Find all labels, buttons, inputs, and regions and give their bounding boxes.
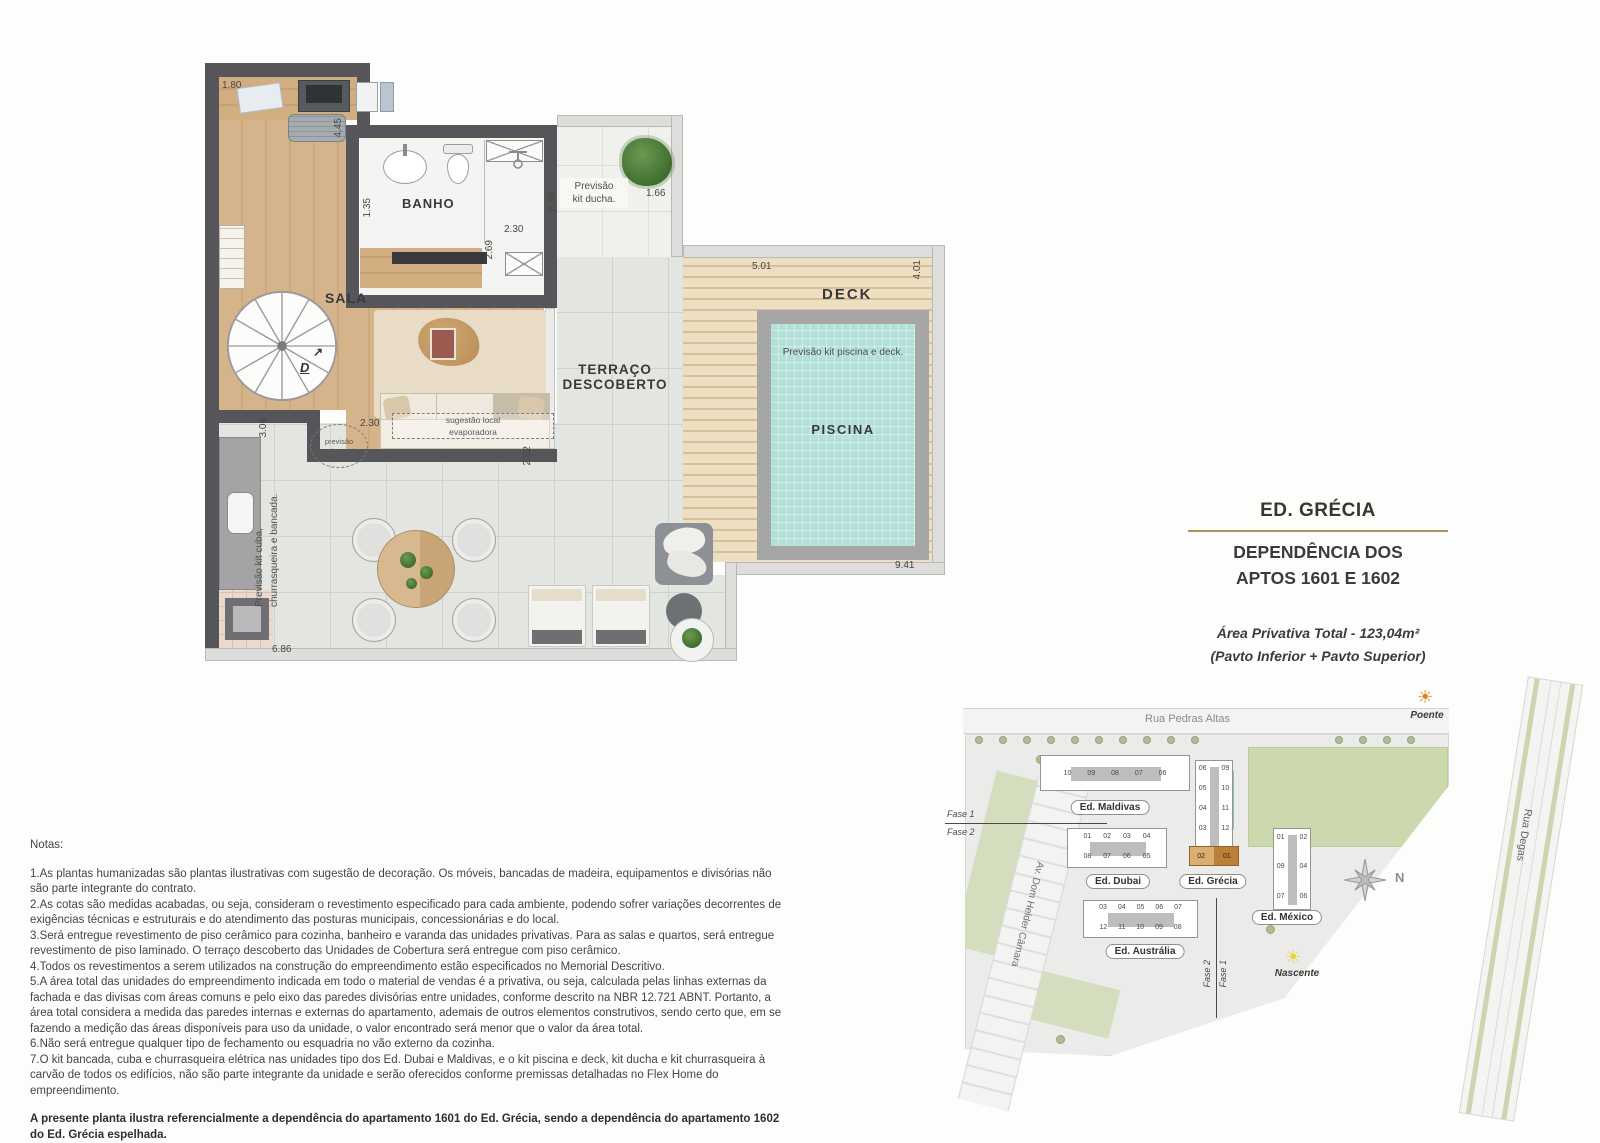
tree-icon	[999, 736, 1007, 744]
note-item: 2.As cotas são medidas acabadas, ou seja…	[30, 898, 786, 929]
lounger-foot	[532, 630, 582, 644]
plant-icon	[682, 628, 702, 648]
dining-chair	[352, 598, 396, 642]
parapet	[932, 245, 945, 575]
building-units: 01 02	[1274, 834, 1310, 841]
note-item: 3.Será entregue revestimento de piso cer…	[30, 929, 786, 960]
note-item: 1.As plantas humanizadas são plantas ilu…	[30, 867, 786, 898]
sun-east-icon: ☀	[1285, 948, 1301, 966]
wall-segment	[352, 125, 557, 138]
dimension: 9.41	[895, 560, 914, 571]
kit-ducha-line: kit ducha.	[560, 193, 628, 206]
building-units: 12 11 10 09 08	[1084, 924, 1197, 931]
building-label-maldivas: Ed. Maldivas	[1071, 800, 1150, 815]
compass-icon	[1343, 858, 1387, 902]
tree-icon	[1266, 925, 1275, 934]
building-mexico: 01 02 09 04 07 06	[1273, 828, 1311, 910]
sun-west-icon: ☀	[1417, 688, 1433, 706]
building-dubai: 01 02 03 04 08 07 06 05	[1067, 828, 1167, 868]
site-map: Rua Pedras Altas Av. Dom Helder Câmara R…	[955, 660, 1600, 1120]
room-sala-label: SALA	[325, 290, 367, 306]
dining-chair	[452, 518, 496, 562]
tree-icon	[1047, 736, 1055, 744]
tree-icon	[1056, 1035, 1065, 1044]
area-line: Área Privativa Total - 123,04m²	[1188, 625, 1448, 641]
tree-icon	[1359, 736, 1367, 744]
shaft-box	[505, 252, 543, 276]
compass-n-label: N	[1395, 870, 1404, 885]
room-deck-label: DECK	[822, 286, 873, 303]
dimension: 2.30	[360, 418, 379, 429]
dimension: 2.69	[484, 240, 495, 259]
tree-icon	[1167, 736, 1175, 744]
phase-label-fase2-v: Fase 2	[1202, 960, 1212, 988]
parapet	[557, 115, 683, 127]
building-label-australia: Ed. Austrália	[1106, 944, 1185, 959]
tree-icon	[1335, 736, 1343, 744]
tree-icon	[1095, 736, 1103, 744]
evaporator-label: sugestão local	[393, 414, 553, 426]
building-maldivas: 10 09 08 07 06	[1040, 755, 1190, 791]
condenser-label: condensador	[311, 447, 367, 457]
appliance	[392, 252, 487, 264]
bbq-grill-inner	[233, 606, 261, 632]
sun-east-label: Nascente	[1275, 968, 1319, 979]
wall-segment	[205, 63, 370, 77]
terraco-line: TERRAÇO	[540, 362, 690, 377]
dimension: 2.30	[504, 224, 523, 235]
title-rule	[1188, 530, 1448, 532]
parapet	[725, 562, 737, 660]
laptop-screen	[306, 85, 342, 103]
building-units: 03 04 05 06 07	[1084, 904, 1197, 911]
sun-west-label: Poente	[1410, 710, 1443, 721]
tree-icon	[1407, 736, 1415, 744]
building-title: ED. GRÉCIA	[1188, 500, 1448, 522]
wall-segment	[205, 63, 219, 660]
building-units: 08 07 06 05	[1068, 853, 1166, 860]
building-grecia: 06 09 05 10 04 11 03 12	[1195, 760, 1233, 860]
lounger-pillow	[532, 589, 582, 601]
building-units: 06 09	[1196, 765, 1232, 772]
parapet	[683, 245, 945, 258]
terraco-line: DESCOBERTO	[540, 377, 690, 392]
tree-icon	[1143, 736, 1151, 744]
dimension: 2.52	[522, 446, 533, 465]
building-grecia-highlight-unit: 02 01	[1189, 846, 1239, 866]
title-block: ED. GRÉCIA DEPENDÊNCIA DOS APTOS 1601 E …	[1188, 500, 1448, 664]
dining-chair	[452, 598, 496, 642]
phase-label-fase1: Fase 1	[947, 809, 975, 819]
shelf	[219, 225, 245, 289]
parapet	[671, 115, 683, 257]
dimension: 4.01	[912, 260, 923, 279]
tree-icon	[1383, 736, 1391, 744]
kit-cuba-line: Previsão kit cuba,	[252, 432, 267, 607]
kit-ducha-note: Previsão kit ducha.	[560, 178, 628, 208]
book-icon	[356, 82, 378, 112]
table-book	[430, 328, 456, 360]
plant-icon	[420, 566, 433, 579]
phase-divider-vertical	[1216, 898, 1217, 1018]
street-label-top: Rua Pedras Altas	[1145, 713, 1230, 725]
building-units: 01 02 03 04	[1068, 833, 1166, 840]
dimension: 4.45	[333, 118, 344, 137]
note-item: 7.O kit bancada, cuba e churrasqueira el…	[30, 1053, 786, 1100]
room-terraco-label: TERRAÇO DESCOBERTO	[540, 362, 690, 392]
phase-label-fase1-v: Fase 1	[1218, 960, 1228, 988]
lounger-pillow	[596, 589, 646, 601]
note-item: 6.Não será entregue qualquer tipo de fec…	[30, 1037, 786, 1053]
kit-cuba-note: Previsão kit cuba, churrasqueira e banca…	[252, 432, 282, 607]
shower-icon	[503, 150, 533, 172]
note-item: 5.A área total das unidades do empreendi…	[30, 975, 786, 1037]
notes-heading: Notas:	[30, 838, 786, 854]
lounger-foot	[596, 630, 646, 644]
dining-table	[377, 530, 455, 608]
tree-icon	[1191, 736, 1199, 744]
book-icon	[380, 82, 394, 112]
building-units: 03 12	[1196, 825, 1232, 832]
wall-segment	[346, 125, 359, 295]
condenser-label: previsão	[311, 437, 367, 447]
tree-icon	[1119, 736, 1127, 744]
subtitle-line2: APTOS 1601 E 1602	[1188, 568, 1448, 589]
building-units: 10 09 08 07 06	[1041, 770, 1189, 777]
tree-icon	[1023, 736, 1031, 744]
building-label-dubai: Ed. Dubai	[1086, 874, 1150, 889]
dimension: 6.86	[272, 644, 291, 655]
dimension: 5.01	[752, 261, 771, 272]
building-units: 09 04	[1274, 863, 1310, 870]
phase-label-fase2: Fase 2	[947, 827, 975, 837]
building-australia: 03 04 05 06 07 12 11 10 09 08	[1083, 900, 1198, 938]
wall-segment	[346, 295, 557, 308]
building-units-highlight: 02 01	[1190, 853, 1238, 860]
dimension: 6.86	[547, 192, 558, 211]
dimension: 1.80	[222, 80, 241, 91]
kit-piscina-note: Previsão kit piscina e deck.	[771, 347, 915, 358]
room-piscina-label: PISCINA	[771, 422, 915, 437]
plant-icon	[406, 578, 417, 589]
street-median	[1501, 684, 1575, 1119]
subtitle-line1: DEPENDÊNCIA DOS	[1188, 542, 1448, 563]
toilet-tank	[443, 144, 473, 154]
floorplan: ↗ D sugestão local evaporadora previsão …	[0, 0, 960, 700]
wall-segment	[544, 125, 557, 308]
building-units: 04 11	[1196, 805, 1232, 812]
condenser-suggestion-circle: previsão condensador	[310, 424, 368, 468]
tree-icon	[975, 736, 983, 744]
building-label-mexico: Ed. México	[1252, 910, 1322, 925]
note-item: 4.Todos os revestimentos a serem utiliza…	[30, 960, 786, 976]
banho-divider	[484, 140, 485, 243]
stair-direction-arrow: ↗	[313, 345, 323, 359]
phase-divider-horizontal	[945, 823, 1107, 824]
dimension: 1.66	[646, 188, 665, 199]
dimension: 1.35	[362, 198, 373, 217]
faucet-icon	[403, 144, 407, 156]
evaporator-suggestion-box: sugestão local evaporadora	[392, 413, 554, 439]
building-label-grecia: Ed. Grécia	[1179, 874, 1246, 889]
kit-ducha-line: Previsão	[560, 180, 628, 193]
street-rua-degas: Rua Degas	[1459, 676, 1583, 1121]
building-units: 05 10	[1196, 785, 1232, 792]
plant-icon	[400, 552, 416, 568]
notes-footer: A presente planta ilustra referencialmen…	[30, 1112, 786, 1143]
notes-block: Notas: 1.As plantas humanizadas são plan…	[30, 838, 786, 1143]
tree-icon	[1071, 736, 1079, 744]
room-banho-label: BANHO	[402, 196, 455, 211]
kit-cuba-line: churrasqueira e bancada.	[267, 432, 282, 607]
building-units: 07 06	[1274, 893, 1310, 900]
dimension: 3.06	[258, 418, 269, 437]
evaporator-label: evaporadora	[393, 426, 553, 438]
counter-sink	[227, 492, 254, 534]
palm-plant-icon	[622, 138, 672, 186]
stair-direction-label: D	[300, 360, 309, 375]
street-label-left: Av. Dom Helder Câmara	[1009, 860, 1046, 967]
